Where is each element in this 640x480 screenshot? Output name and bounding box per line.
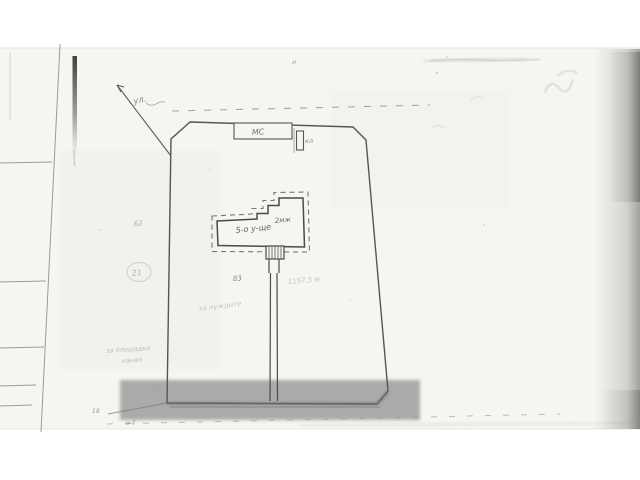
walkway-left-line	[270, 273, 271, 401]
ms-outbuilding: МС	[234, 123, 292, 139]
scan-streak-tail	[74, 150, 75, 166]
plot-83-label: 83	[233, 274, 242, 283]
scan-streak-dark	[73, 56, 78, 156]
site-plan-svg: ул. МС кл 2мж 5-о у-ще 83 62 21 1157,5	[0, 0, 640, 480]
utility-label: кл	[305, 137, 313, 145]
paper-sheet	[0, 48, 640, 429]
margin-note-line2: канал	[122, 356, 143, 365]
ms-outbuilding-label: МС	[252, 127, 265, 137]
building-storeys-label: 2мж	[274, 216, 291, 225]
plot-62-label: 62	[133, 219, 143, 228]
scanned-site-plan-page: ул. МС кл 2мж 5-о у-ще 83 62 21 1157,5	[0, 0, 640, 480]
corner-point-label: 18	[92, 408, 100, 415]
tiny-mark: и	[292, 58, 296, 66]
scan-shadow-right	[594, 49, 640, 429]
offset-mark-label: о-2	[125, 419, 136, 427]
circled-reference-label: 21	[131, 268, 142, 278]
walkway-right-line	[277, 273, 278, 401]
